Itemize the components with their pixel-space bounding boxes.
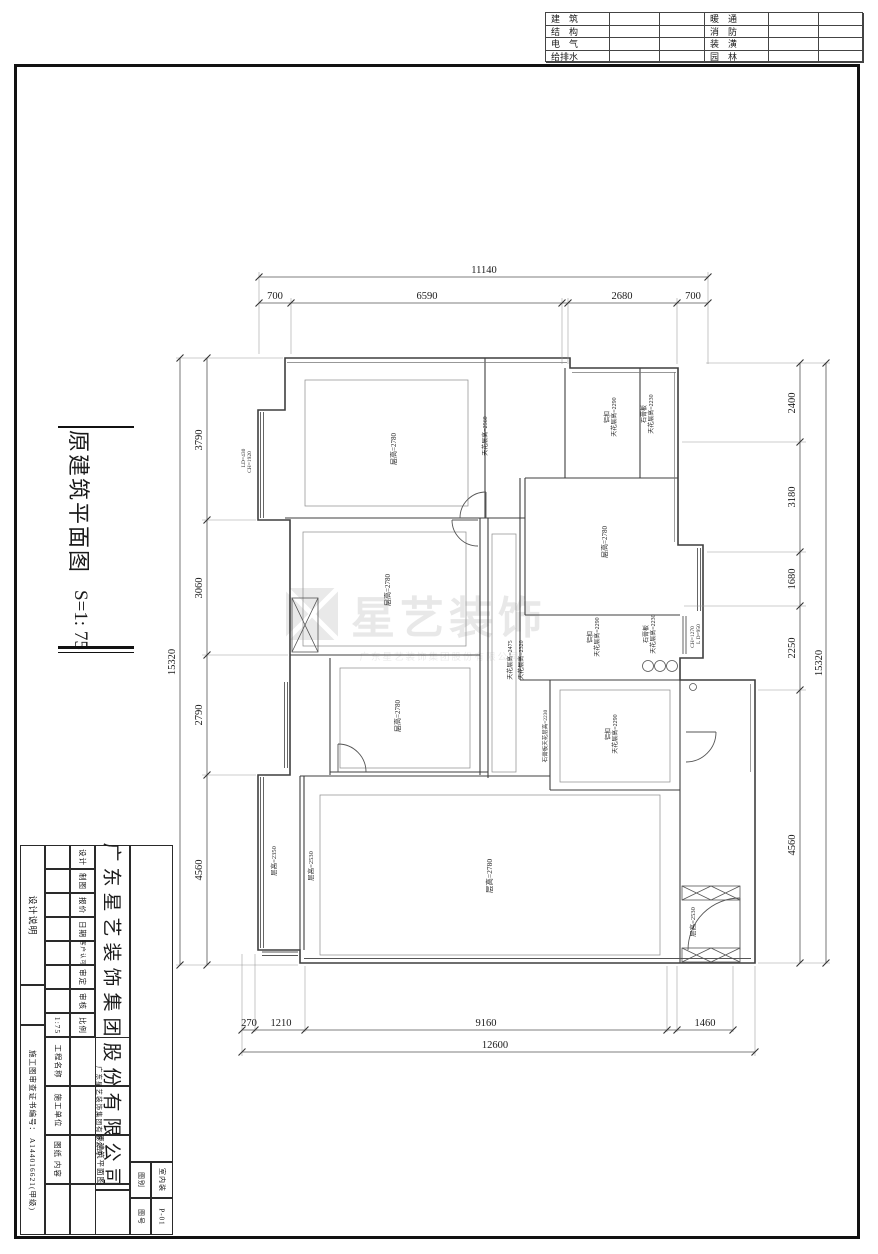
room-labels: 层高=2780天花层高=2560LD=430CH=1920铝扣天花层高=2290… [241, 394, 702, 937]
room-label: 层高=2780 [600, 526, 609, 558]
dimension-segment: 700 [267, 291, 283, 302]
dimension-overall: 15320 [167, 649, 178, 675]
dimension-ticks [177, 274, 830, 1056]
dimension-overall: 12600 [482, 1040, 508, 1051]
floor-plan: 1114070065902680700153203790306027904560… [0, 0, 878, 1254]
stove-burner-icon [655, 661, 666, 672]
room-label: 层高=2780 [389, 433, 398, 465]
room-label: 石膏板 [640, 405, 648, 423]
stove-burner-icon [667, 661, 678, 672]
dimension-texts: 1114070065902680700153203790306027904560… [167, 265, 825, 1051]
pipe-icon [690, 684, 697, 691]
dimension-lines [180, 277, 826, 1052]
dimension-segment: 2400 [787, 393, 798, 414]
wall-hatch [682, 886, 740, 900]
room-label: 天花层高=2290 [593, 617, 601, 656]
room-label: 天花层高=2230 [649, 614, 657, 653]
room-label: 层高=2780 [484, 859, 494, 893]
room-label: 层高=2530 [306, 851, 315, 881]
dimension-segment: 1460 [695, 1018, 716, 1029]
dimension-segment: 1680 [787, 569, 798, 590]
room-label: 天花层高=2290 [611, 714, 619, 753]
room-label: 天花层高=2560 [481, 416, 489, 455]
room-label: 层高=2780 [393, 700, 402, 732]
dimension-segment: 6590 [417, 291, 438, 302]
dimension-segment: 2790 [194, 705, 205, 726]
room-label: 层高=2530 [688, 907, 697, 937]
room-label: 天花层高=2475 [506, 640, 514, 679]
dimension-segment: 3180 [787, 487, 798, 508]
room-label: 石膏板天花层高=2230 [541, 709, 549, 762]
room-label: 天花层高=2320 [517, 640, 525, 679]
room-label: 层高=2350 [269, 846, 278, 876]
wall-hatch [682, 948, 740, 962]
dimension-segment: 700 [685, 291, 701, 302]
room-label: 铝扣 [586, 631, 594, 643]
dimension-segment: 3790 [194, 430, 205, 451]
extension-lines [176, 272, 830, 1056]
room-label: 层高=2780 [383, 574, 392, 606]
wall-outline [258, 358, 755, 963]
dimension-segment: 9160 [476, 1018, 497, 1029]
room-label: 铝扣 [603, 411, 611, 423]
dimension-segment: 4560 [787, 835, 798, 856]
dimension-segment: 1210 [271, 1018, 292, 1029]
room-label: CH=1920 [247, 451, 253, 473]
dimension-segment: 4560 [194, 860, 205, 881]
dimension-segment: 2680 [612, 291, 633, 302]
dimension-overall: 11140 [471, 265, 496, 276]
room-label: 铝扣 [604, 728, 612, 740]
dimension-segment: 270 [241, 1018, 257, 1029]
room-label: L D=950 [696, 624, 702, 644]
room-label: 天花层高=2230 [647, 394, 655, 433]
dimension-segment: 3060 [194, 578, 205, 599]
room-label: 天花层高=2290 [610, 397, 618, 436]
dimension-segment: 2250 [787, 638, 798, 659]
drawing-sheet: 建 筑暖 通结 构消 防电 气装 潢给排水园 林 原建筑平面图 S=1: 75 … [0, 0, 878, 1254]
room-label: 石膏板 [642, 625, 650, 643]
stove-burner-icon [643, 661, 654, 672]
dimension-overall: 15320 [814, 650, 825, 676]
